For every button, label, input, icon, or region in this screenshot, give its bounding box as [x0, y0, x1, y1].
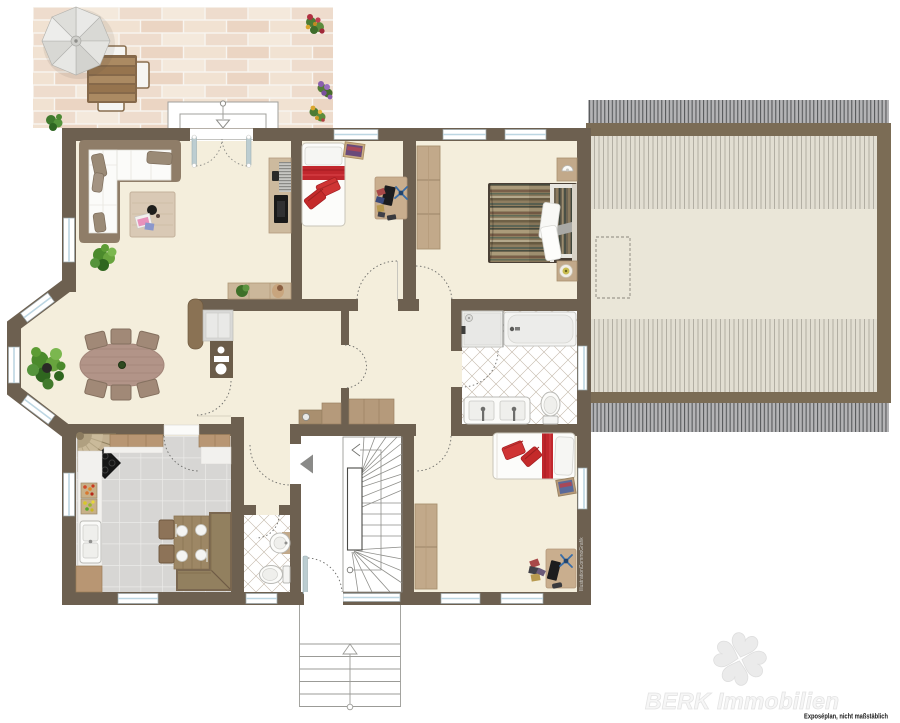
- svg-text:IllustrationCommoGrafik: IllustrationCommoGrafik: [579, 537, 585, 591]
- svg-text:BERK Immobilien: BERK Immobilien: [645, 688, 839, 714]
- svg-text:Exposéplan, nicht maßstäblich: Exposéplan, nicht maßstäblich: [804, 712, 888, 721]
